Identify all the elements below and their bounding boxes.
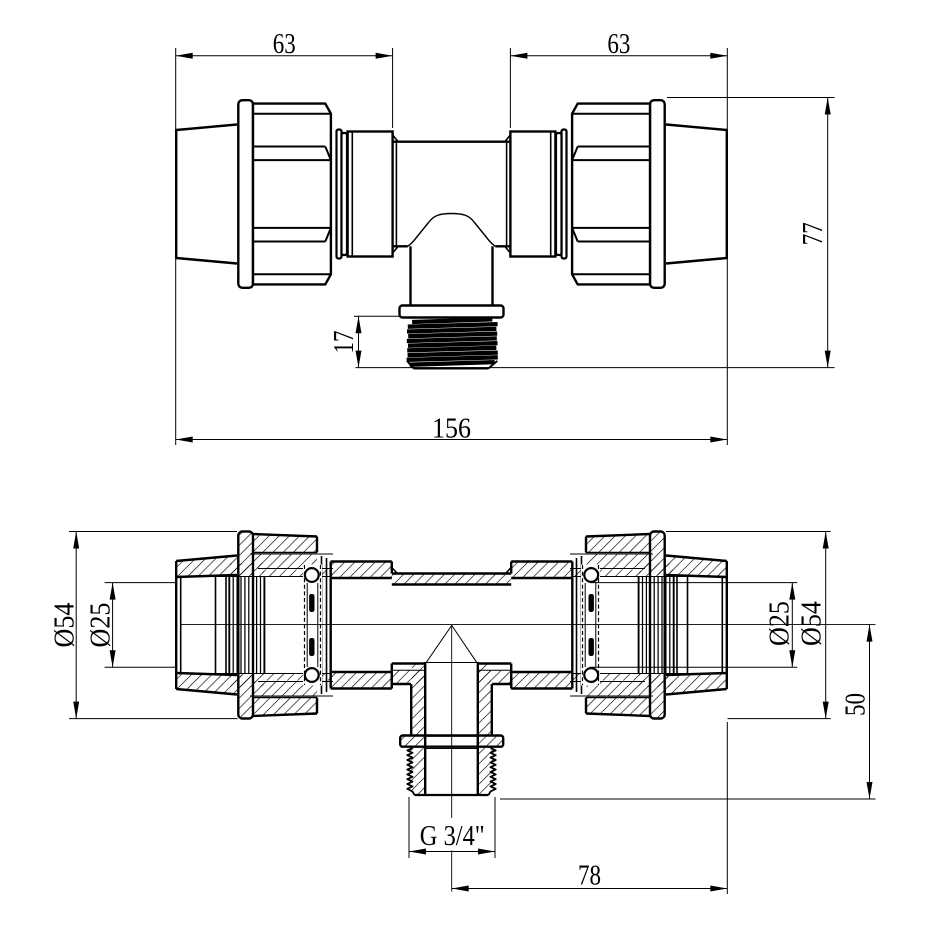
svg-text:78: 78 (578, 861, 601, 892)
svg-text:Ø25: Ø25 (86, 603, 117, 648)
svg-text:156: 156 (432, 413, 471, 444)
svg-text:Ø25: Ø25 (765, 601, 796, 646)
svg-text:63: 63 (273, 29, 296, 60)
svg-text:77: 77 (798, 222, 829, 245)
svg-text:Ø54: Ø54 (797, 601, 828, 646)
svg-text:63: 63 (607, 29, 630, 60)
svg-text:50: 50 (841, 693, 872, 716)
svg-text:Ø54: Ø54 (50, 603, 81, 648)
svg-text:G 3/4": G 3/4" (420, 821, 485, 852)
svg-text:17: 17 (329, 331, 360, 354)
